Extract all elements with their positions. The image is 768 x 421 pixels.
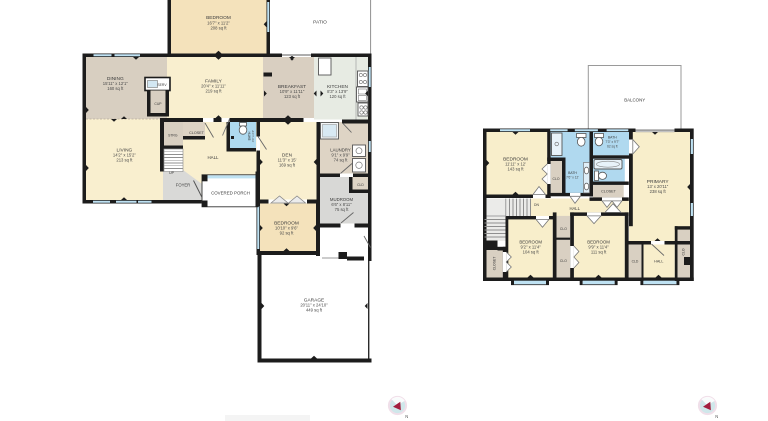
svg-text:CUP: CUP	[154, 102, 162, 106]
svg-text:CLO: CLO	[560, 227, 567, 231]
svg-text:CLO: CLO	[553, 177, 560, 181]
svg-text:7'6" x 12': 7'6" x 12'	[566, 176, 579, 180]
svg-text:CLD: CLD	[632, 260, 639, 264]
svg-text:CLD: CLD	[357, 183, 364, 187]
svg-text:HALL: HALL	[654, 260, 663, 264]
svg-text:CLOSET: CLOSET	[189, 131, 205, 135]
svg-text:143 sq ft: 143 sq ft	[507, 167, 524, 172]
svg-text:111 sq ft: 111 sq ft	[591, 250, 607, 255]
svg-text:HALL: HALL	[208, 155, 220, 160]
svg-text:N: N	[405, 414, 408, 419]
svg-text:CLO: CLO	[560, 259, 567, 263]
svg-text:7'3" x 9'7": 7'3" x 9'7"	[605, 140, 619, 144]
svg-text:DN: DN	[534, 203, 539, 207]
svg-text:213 sq ft: 213 sq ft	[116, 158, 133, 163]
svg-text:62 sq ft: 62 sq ft	[607, 145, 618, 149]
svg-text:UP: UP	[169, 171, 175, 175]
svg-text:STRG: STRG	[168, 133, 178, 137]
svg-text:SERV: SERV	[157, 83, 167, 87]
svg-text:FOYER: FOYER	[176, 183, 190, 188]
svg-text:HALL: HALL	[569, 206, 580, 211]
svg-text:449 sq ft: 449 sq ft	[306, 308, 323, 313]
svg-text:PATIO: PATIO	[313, 20, 327, 26]
svg-text:238 sq ft: 238 sq ft	[650, 189, 667, 194]
svg-text:123 sq ft: 123 sq ft	[284, 94, 301, 99]
svg-text:160 sq ft: 160 sq ft	[107, 86, 124, 91]
svg-text:92 sq ft: 92 sq ft	[280, 231, 295, 236]
svg-text:CLOSET: CLOSET	[493, 257, 497, 271]
svg-text:219 sq ft: 219 sq ft	[205, 89, 222, 94]
svg-text:75 sq ft: 75 sq ft	[335, 207, 350, 212]
svg-text:CLO: CLO	[682, 248, 686, 255]
svg-text:BATH: BATH	[568, 171, 577, 175]
svg-text:BATH: BATH	[608, 136, 617, 140]
svg-text:N: N	[715, 414, 718, 419]
svg-text:104 sq ft: 104 sq ft	[523, 250, 540, 255]
svg-text:74 sq ft: 74 sq ft	[334, 158, 349, 163]
svg-text:COVERED PORCH: COVERED PORCH	[211, 191, 250, 196]
svg-text:4'6" x 6'4": 4'6" x 6'4"	[251, 130, 255, 142]
svg-text:120 sq ft: 120 sq ft	[329, 94, 346, 99]
svg-text:169 sq ft: 169 sq ft	[279, 163, 296, 168]
svg-text:208 sq ft: 208 sq ft	[210, 25, 227, 30]
svg-text:BALCONY: BALCONY	[624, 98, 645, 103]
svg-text:CLOSET: CLOSET	[601, 189, 617, 193]
